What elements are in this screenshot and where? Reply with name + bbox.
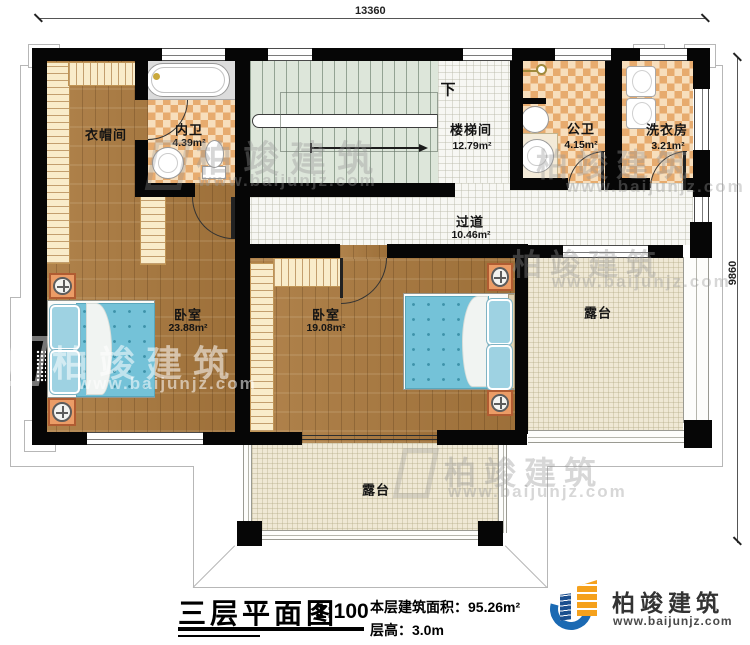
room-area-laundry: 3.21m² <box>651 140 684 152</box>
eave-line <box>193 587 548 588</box>
stair-guide-line <box>280 92 438 152</box>
stair-direction-line <box>312 147 420 149</box>
wall-segment <box>32 48 47 445</box>
eave-line <box>193 466 194 587</box>
sliding-door-bottom <box>302 433 437 443</box>
terrace-column <box>684 420 712 448</box>
ac-unit-icon <box>487 390 513 416</box>
terrace-railing <box>243 443 252 533</box>
wardrobe-left-wall <box>44 62 70 264</box>
wall-segment <box>248 244 340 258</box>
dimension-line-top <box>38 18 706 19</box>
ac-unit-icon <box>48 398 76 426</box>
room-area-bedroom-left: 23.88m² <box>168 322 207 334</box>
wall-segment <box>135 60 148 100</box>
eave-line <box>547 466 548 587</box>
eave-line <box>10 297 11 467</box>
wall-segment <box>135 140 148 183</box>
fan-icon <box>53 277 72 295</box>
room-label-bedroom-left: 卧室 <box>174 305 202 324</box>
stair-arrow-head <box>419 144 428 152</box>
stair-direction-tick <box>310 143 312 153</box>
ac-unit-icon <box>49 273 76 299</box>
eave-line <box>20 65 21 298</box>
eave-line <box>10 466 194 467</box>
plan-title: 三层平面图 <box>178 592 338 632</box>
floor-area-value: 95.26m² <box>468 599 520 615</box>
door-leaf <box>340 258 343 298</box>
window <box>640 48 687 61</box>
wall-segment <box>437 430 527 445</box>
wall-segment <box>693 150 710 197</box>
floor-height-label: 层高： <box>370 622 412 638</box>
sink-basin <box>527 146 547 166</box>
wall-segment <box>135 183 195 197</box>
room-label-laundry: 洗衣房 <box>646 120 688 139</box>
window <box>162 48 225 61</box>
room-area-bedroom-right: 19.08m² <box>306 322 345 334</box>
wall-segment <box>510 178 568 190</box>
sink-basin <box>158 153 178 173</box>
room-label-cloakroom: 衣帽间 <box>85 125 127 144</box>
room-label-ensuite: 内卫 <box>175 120 203 139</box>
wall-column-marker <box>36 350 46 382</box>
floor-terrace-right <box>528 257 683 430</box>
wall-segment <box>32 432 87 445</box>
dimension-depth: 9860 <box>727 241 739 305</box>
door-leaf <box>231 197 235 239</box>
wall-segment <box>510 48 523 190</box>
room-area-stairwell: 12.79m² <box>452 140 491 152</box>
floor-door-threshold <box>340 245 387 259</box>
terrace-railing <box>683 257 709 423</box>
wall-segment <box>690 222 712 258</box>
floor-plan-page: 13360 9860 <box>0 0 750 645</box>
wall-segment <box>250 183 455 197</box>
terrace-railing <box>498 443 507 533</box>
shower-head-icon <box>536 64 547 75</box>
room-label-stairwell: 楼梯间 <box>450 120 492 139</box>
wall-segment <box>515 244 528 434</box>
bed-pillow <box>50 350 80 394</box>
wall-segment <box>235 48 250 432</box>
wardrobe-bedroom-right-top <box>273 258 342 287</box>
window <box>555 48 611 61</box>
window <box>268 48 312 61</box>
faucet-icon <box>153 73 160 80</box>
wall-segment <box>312 48 463 61</box>
room-label-terrace-bottom: 露台 <box>362 480 390 499</box>
brand-logo-icon <box>560 593 571 621</box>
room-area-public-bath: 4.15m² <box>564 139 597 151</box>
washing-machine-door <box>632 70 652 93</box>
door-leaf <box>601 151 604 190</box>
door-leaf <box>683 151 686 190</box>
toilet-bowl <box>205 140 224 168</box>
wardrobe-bedroom-right <box>250 263 274 432</box>
toilet-bowl <box>521 106 549 133</box>
floor-height-value: 3.0m <box>412 622 444 638</box>
ac-unit-icon <box>487 263 513 291</box>
room-label-bedroom-right: 卧室 <box>312 305 340 324</box>
floor-area-label: 本层建筑面积： <box>370 599 468 615</box>
bathtub-inner <box>151 67 225 93</box>
wardrobe-top <box>68 62 140 86</box>
eave-diagonal <box>193 545 235 587</box>
brand-logo-icon <box>577 580 597 616</box>
floor-height-row: 层高：3.0m <box>370 620 444 640</box>
eave-line <box>547 466 723 467</box>
title-underline-thin <box>178 635 260 637</box>
brand-name: 柏竣建筑 <box>612 584 724 618</box>
bed-pillow <box>487 345 512 390</box>
terrace-railing <box>528 430 684 443</box>
wall-segment <box>528 245 563 258</box>
bed-pillow <box>50 305 80 350</box>
terrace-railing <box>252 530 498 540</box>
bed-blanket <box>462 296 488 387</box>
plan-scale: 1:100 <box>315 600 369 624</box>
room-label-corridor: 过道 <box>456 212 484 231</box>
window <box>694 89 709 150</box>
room-label-public-bath: 公卫 <box>567 119 595 138</box>
wall-segment <box>605 48 622 190</box>
window <box>463 48 512 61</box>
dimension-width: 13360 <box>352 5 389 17</box>
wall-segment <box>693 48 710 89</box>
wall-segment <box>648 245 683 258</box>
eave-line <box>722 65 723 467</box>
bed-pillow <box>487 299 512 345</box>
floor-area-row: 本层建筑面积：95.26m² <box>370 597 520 617</box>
wall-segment <box>622 178 650 190</box>
fan-icon <box>491 267 509 287</box>
room-area-ensuite: 4.39m² <box>172 137 205 149</box>
fan-icon <box>491 394 509 412</box>
room-label-terrace-right: 露台 <box>584 303 612 322</box>
fan-icon <box>52 402 72 422</box>
brand-website: www.baijunjz.com <box>613 614 733 628</box>
eave-line <box>10 297 21 298</box>
window <box>694 197 709 222</box>
terrace-column <box>478 521 503 546</box>
stair-down-label: 下 <box>440 79 455 100</box>
sliding-door-corridor <box>563 245 648 258</box>
terrace-column <box>237 521 262 546</box>
wall-segment <box>387 244 515 258</box>
eave-diagonal <box>505 545 547 587</box>
room-area-corridor: 10.46m² <box>451 229 490 241</box>
window <box>87 432 203 445</box>
title-underline <box>178 627 364 631</box>
wardrobe-bedroom-left <box>140 188 166 265</box>
wall-segment <box>203 432 302 445</box>
